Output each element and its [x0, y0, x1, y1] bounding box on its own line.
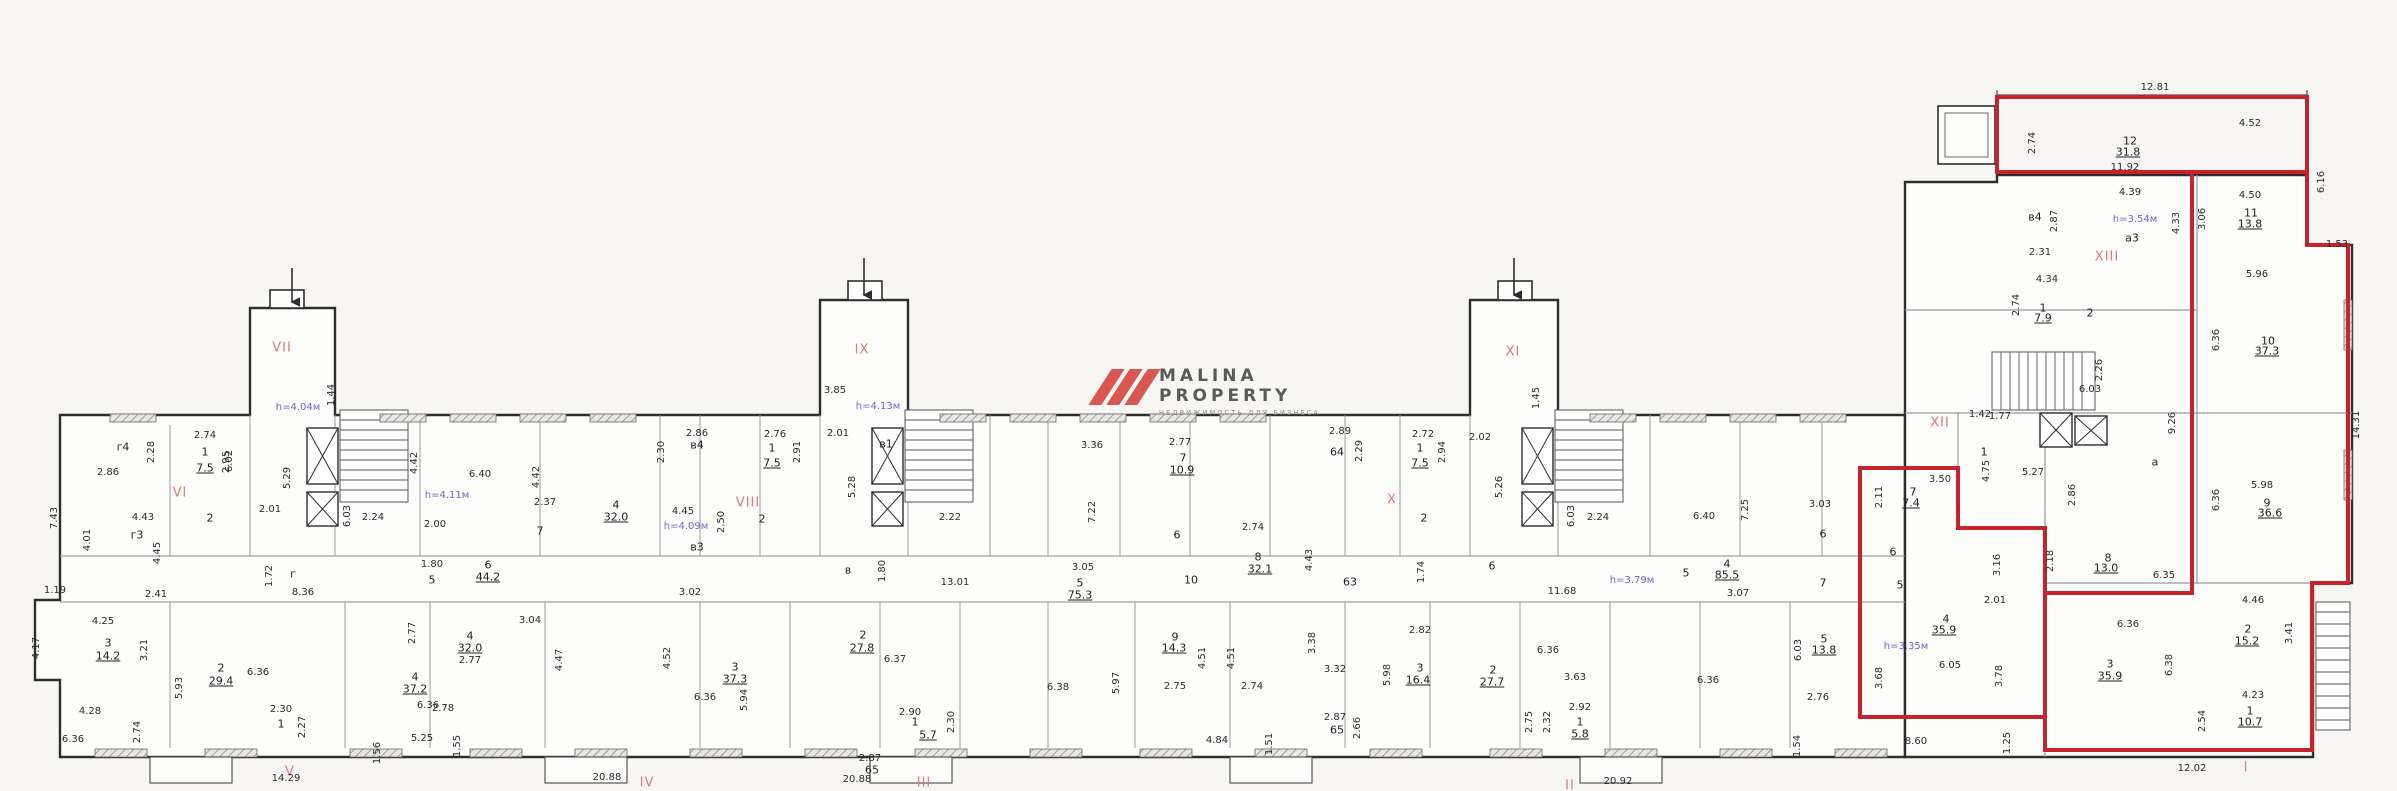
- room-area: 7.5: [763, 458, 781, 469]
- room-number: в4: [690, 440, 703, 451]
- room-area: 7.9: [2034, 313, 2052, 324]
- room-number: 5: [1683, 568, 1690, 579]
- dimension-label: 11.68: [1548, 587, 1577, 597]
- dimension-label: 3.85: [824, 386, 846, 396]
- dimension-label: 14.31: [2352, 411, 2362, 440]
- dimension-label: 4.52: [2239, 119, 2261, 129]
- room-number: 1: [912, 717, 919, 728]
- dimension-label: 2.30: [947, 711, 957, 733]
- room-number: 6: [1489, 561, 1496, 572]
- dimension-label: 4.45: [672, 507, 694, 517]
- room-number: 1: [1981, 447, 1988, 458]
- ceiling-height-label: h=3.54м: [2113, 215, 2158, 225]
- dimension-label: 2.32: [1543, 711, 1553, 733]
- room-area: 29.4: [209, 676, 234, 687]
- dimension-label: 2.37: [534, 498, 556, 508]
- dimension-label: 3.41: [2285, 622, 2295, 644]
- dimension-label: 4.43: [1305, 549, 1315, 571]
- office-number: 64: [1330, 447, 1344, 458]
- dimension-label: 2.74: [2028, 132, 2038, 154]
- dimension-label: 6.40: [1693, 512, 1715, 522]
- section-numeral: IX: [855, 344, 870, 357]
- room-number: 2: [218, 663, 225, 674]
- room-number: г4: [117, 442, 130, 453]
- dimension-label: 1.56: [373, 742, 383, 764]
- dimension-label: 5.97: [1112, 672, 1122, 694]
- office-number: 63: [1343, 577, 1357, 588]
- room-area: 5.7: [919, 730, 937, 741]
- dimension-label: 2.24: [362, 513, 384, 523]
- room-number: в1: [879, 439, 892, 450]
- dimension-label: 2.22: [939, 513, 961, 523]
- dimension-label: 6.38: [1047, 683, 1069, 693]
- room-number: 8: [1255, 552, 1262, 563]
- dimension-label: 3.32: [1324, 665, 1346, 675]
- ceiling-height-label: h=4.04м: [276, 403, 321, 413]
- room-area: 15.2: [2235, 636, 2260, 647]
- dimension-label: 2.86: [686, 429, 708, 439]
- section-numeral: VI: [173, 487, 188, 500]
- dimension-label: 7.22: [1088, 501, 1098, 523]
- dimension-label: 20.92: [1604, 777, 1633, 787]
- dimension-label: 3.16: [1993, 554, 2003, 576]
- dimension-label: 2.86: [2068, 484, 2078, 506]
- dimension-label: 2.86: [97, 468, 119, 478]
- room-number: 3: [105, 638, 112, 649]
- room-number: 2: [2087, 308, 2094, 319]
- room-area: 32.0: [458, 643, 483, 654]
- ceiling-height-label: h=3.79м: [1610, 576, 1655, 586]
- dimension-label: 2.18: [2046, 550, 2056, 572]
- dimension-label: 1.44: [327, 384, 337, 406]
- dimension-label: 6.03: [343, 505, 353, 527]
- dimension-label: 2.01: [827, 429, 849, 439]
- floorplan-page: MALINA PROPERTY НЕДВИЖИМОСТЬ ДЛЯ БИЗНЕСА…: [0, 0, 2397, 791]
- section-numeral: X: [1387, 494, 1397, 507]
- room-number: 6: [1174, 530, 1181, 541]
- dimension-label: 6.36: [417, 701, 439, 711]
- dimension-label: 4.42: [410, 452, 420, 474]
- dimension-label: 2.74: [194, 431, 216, 441]
- dimension-label: 6.03: [2079, 385, 2101, 395]
- dimension-label: 4.25: [92, 617, 114, 627]
- dimension-label: 2.74: [2012, 294, 2022, 316]
- room-number: 7: [537, 526, 544, 537]
- dimension-label: 1.72: [265, 565, 275, 587]
- room-area: 44.2: [476, 572, 501, 583]
- dimension-label: 6.37: [884, 655, 906, 665]
- dimension-label: 2.66: [1353, 717, 1363, 739]
- room-number: в: [845, 565, 851, 576]
- dimension-label: 2.89: [1329, 427, 1351, 437]
- room-area: 35.9: [1932, 625, 1957, 636]
- dimension-label: 2.11: [1875, 486, 1885, 508]
- room-number: 1: [1577, 717, 1584, 728]
- room-area: 10.7: [2238, 717, 2263, 728]
- room-number: 6: [485, 560, 492, 571]
- dimension-label: 2.76: [1807, 693, 1829, 703]
- dimension-label: 4.43: [132, 513, 154, 523]
- room-area: 37.2: [403, 684, 428, 695]
- room-area: 75.3: [1068, 590, 1093, 601]
- room-area: 37.3: [723, 674, 748, 685]
- room-number: 3: [732, 662, 739, 673]
- dimension-label: 4.51: [1198, 647, 1208, 669]
- dimension-label: 13.01: [941, 578, 970, 588]
- dimension-label: 6.38: [2165, 654, 2175, 676]
- room-number: 2: [207, 513, 214, 524]
- dimension-label: 2.74: [1242, 523, 1264, 533]
- room-number: 5: [1897, 580, 1904, 591]
- dimension-label: 6.36: [1537, 646, 1559, 656]
- dimension-label: 4.23: [2242, 691, 2264, 701]
- dimension-label: 6.36: [62, 735, 84, 745]
- room-number: 5: [429, 575, 436, 586]
- dimension-label: 2.50: [717, 511, 727, 533]
- dimension-label: 8.60: [1905, 737, 1927, 747]
- dimension-label: 2.54: [2198, 710, 2208, 732]
- ceiling-height-label: h=3.35м: [1884, 642, 1929, 652]
- room-number: 4: [412, 672, 419, 683]
- room-number: 1: [1417, 443, 1424, 454]
- room-number: 5: [1077, 578, 1084, 589]
- room-area: 31.8: [2116, 147, 2141, 158]
- dimension-label: 3.78: [1995, 665, 2005, 687]
- dimension-label: 5.98: [1383, 664, 1393, 686]
- dimension-label: 20.88: [843, 775, 872, 785]
- dimension-label: 3.21: [140, 639, 150, 661]
- dimension-label: 1.42: [1969, 410, 1991, 420]
- room-area: 10.9: [1170, 465, 1195, 476]
- room-area: 14.2: [96, 651, 121, 662]
- room-number: 2: [1421, 513, 1428, 524]
- dimension-label: 1.77: [1989, 412, 2011, 422]
- room-number: 3: [2107, 659, 2114, 670]
- dimension-label: 9.26: [2168, 412, 2178, 434]
- dimension-label: 6.36: [247, 668, 269, 678]
- dimension-label: 1.25: [2003, 732, 2013, 754]
- dimension-label: 1.55: [453, 735, 463, 757]
- dimension-label: 2.87: [859, 754, 881, 764]
- room-area: 13.8: [1812, 645, 1837, 656]
- section-numeral: XIII: [2095, 251, 2119, 264]
- dimension-label: 2.28: [147, 441, 157, 463]
- dimension-label: 1.51: [1265, 733, 1275, 755]
- dimension-label: 3.50: [1929, 475, 1951, 485]
- room-area: 13.8: [2238, 219, 2263, 230]
- dimension-label: 4.45: [153, 542, 163, 564]
- room-number: 4: [467, 631, 474, 642]
- room-number: а3: [2125, 233, 2139, 244]
- dimension-label: 20.88: [593, 773, 622, 783]
- dimension-label: 2.27: [298, 716, 308, 738]
- dimension-label: 5.96: [2246, 270, 2268, 280]
- dimension-label: 2.30: [657, 441, 667, 463]
- room-area: 7.5: [1411, 458, 1429, 469]
- dimension-label: 4.42: [532, 466, 542, 488]
- dimension-label: 2.24: [1587, 513, 1609, 523]
- dimension-label: 6.03: [1794, 639, 1804, 661]
- dimension-label: 4.28: [79, 707, 101, 717]
- dimension-label: 11.92: [2111, 163, 2140, 173]
- room-number: 7: [1820, 578, 1827, 589]
- room-number: 3: [1417, 663, 1424, 674]
- dimension-label: 2.01: [259, 505, 281, 515]
- section-numeral: III: [917, 777, 932, 790]
- dimension-label: 5.25: [411, 734, 433, 744]
- dimension-label: 4.84: [1206, 736, 1228, 746]
- room-area: 36.6: [2258, 508, 2283, 519]
- section-numeral: VIII: [736, 497, 760, 510]
- dimension-label: 1.19: [44, 586, 66, 596]
- dimension-label: 5.27: [2022, 468, 2044, 478]
- dimension-label: 2.82: [1409, 626, 1431, 636]
- room-number: 7: [1180, 453, 1187, 464]
- dimension-label: 14.29: [272, 774, 301, 784]
- dimension-label: 2.26: [2095, 359, 2105, 381]
- dimension-label: 2.87: [1324, 713, 1346, 723]
- dimension-label: 1.80: [878, 560, 888, 582]
- dimension-label: 2.72: [1412, 430, 1434, 440]
- room-number: 1: [278, 719, 285, 730]
- ceiling-height-label: h=4.13м: [856, 402, 901, 412]
- dimension-label: 3.06: [2198, 208, 2208, 230]
- dimension-label: 5.93: [175, 677, 185, 699]
- dimension-label: 4.39: [2119, 188, 2141, 198]
- room-number: в3: [690, 542, 703, 553]
- room-area: 27.7: [1480, 677, 1505, 688]
- room-number: в4: [2028, 212, 2041, 223]
- section-numeral: XI: [1506, 346, 1521, 359]
- dimension-label: 3.68: [1875, 667, 1885, 689]
- dimension-label: 6.36: [2212, 329, 2222, 351]
- section-numeral: IV: [640, 777, 655, 790]
- dimension-label: 1.80: [421, 560, 443, 570]
- dimension-label: 2.41: [145, 590, 167, 600]
- dimension-label: 6.05: [1939, 661, 1961, 671]
- room-area: 16.4: [1406, 675, 1431, 686]
- dimension-label: 2.31: [2029, 248, 2051, 258]
- dimension-label: 1.45: [1532, 387, 1542, 409]
- dimension-label: 6.36: [694, 693, 716, 703]
- dimension-label: 2.87: [2050, 210, 2060, 232]
- room-area: 7.4: [1902, 498, 1920, 509]
- room-area: 5.8: [1571, 729, 1589, 740]
- dimension-label: 2.77: [408, 622, 418, 644]
- room-number: 1: [202, 447, 209, 458]
- room-area: 7.5: [196, 463, 214, 474]
- dimension-label: 1.53: [2326, 240, 2348, 250]
- room-number: 10: [1184, 575, 1198, 586]
- room-number: 2: [2245, 624, 2252, 635]
- room-number: а: [2152, 457, 2159, 468]
- dimension-label: 6.36: [2212, 489, 2222, 511]
- dimension-label: 6.02: [225, 450, 235, 472]
- dimension-label: 6.36: [1697, 676, 1719, 686]
- dimension-label: 8.36: [292, 588, 314, 598]
- room-area: 32.0: [604, 512, 629, 523]
- dimension-label: 2.94: [1438, 441, 1448, 463]
- room-area: 13.0: [2094, 563, 2119, 574]
- dimension-label: 7.43: [50, 507, 60, 529]
- dimension-label: 2.91: [793, 441, 803, 463]
- dimension-label: 2.29: [1355, 440, 1365, 462]
- dimension-label: 3.38: [1308, 632, 1318, 654]
- dimension-label: 3.36: [1081, 441, 1103, 451]
- dimension-label: 2.75: [1525, 711, 1535, 733]
- room-number: г: [290, 569, 296, 580]
- dimension-label: 3.04: [519, 616, 541, 626]
- room-area: 37.3: [2255, 346, 2280, 357]
- dimension-label: 2.00: [424, 520, 446, 530]
- section-numeral: I: [2244, 762, 2249, 775]
- dimension-label: 1.74: [1417, 561, 1427, 583]
- dimension-label: 5.28: [848, 476, 858, 498]
- dimension-label: 6.40: [469, 470, 491, 480]
- room-area: 35.9: [2098, 671, 2123, 682]
- annotation-layer: VIVIIVIIIIXXXIXIIXIIIVIVIIIIIIh=4.04мh=4…: [0, 0, 2397, 791]
- room-area: 14.3: [1162, 643, 1187, 654]
- dimension-label: 2.92: [1569, 703, 1591, 713]
- ceiling-height-label: h=4.11м: [425, 491, 470, 501]
- dimension-label: 2.76: [764, 430, 786, 440]
- dimension-label: 3.07: [1727, 589, 1749, 599]
- dimension-label: 2.01: [1984, 596, 2006, 606]
- room-area: 27.8: [850, 643, 875, 654]
- dimension-label: 5.26: [1495, 476, 1505, 498]
- ceiling-height-label: h=4.09м: [664, 522, 709, 532]
- dimension-label: 2.30: [270, 705, 292, 715]
- dimension-label: 4.52: [663, 647, 673, 669]
- dimension-label: 3.02: [679, 588, 701, 598]
- section-numeral: XII: [1930, 417, 1950, 430]
- dimension-label: 6.03: [1567, 505, 1577, 527]
- dimension-label: 7.25: [1741, 499, 1751, 521]
- dimension-label: 3.63: [1564, 673, 1586, 683]
- room-area: 32.1: [1248, 564, 1273, 575]
- office-number: 65: [1330, 725, 1344, 736]
- section-numeral: II: [1565, 780, 1575, 791]
- dimension-label: 2.77: [1169, 438, 1191, 448]
- dimension-label: 6.35: [2153, 571, 2175, 581]
- dimension-label: 6.16: [2317, 171, 2327, 193]
- section-numeral: VII: [272, 342, 292, 355]
- room-number: 6: [1820, 529, 1827, 540]
- room-number: 2: [1490, 665, 1497, 676]
- dimension-label: 4.75: [1982, 460, 1992, 482]
- dimension-label: 2.02: [1469, 433, 1491, 443]
- room-number: 2: [759, 514, 766, 525]
- dimension-label: 4.51: [1227, 647, 1237, 669]
- dimension-label: 4.17: [32, 637, 42, 659]
- dimension-label: 12.02: [2178, 764, 2207, 774]
- dimension-label: 5.29: [283, 467, 293, 489]
- room-number: 2: [860, 630, 867, 641]
- dimension-label: 12.81: [2141, 83, 2170, 93]
- dimension-label: 4.01: [83, 529, 93, 551]
- dimension-label: 4.50: [2239, 191, 2261, 201]
- dimension-label: 4.33: [2172, 212, 2182, 234]
- room-number: г3: [131, 530, 144, 541]
- dimension-label: 5.94: [740, 689, 750, 711]
- dimension-label: 2.90: [899, 708, 921, 718]
- room-number: 6: [1890, 547, 1897, 558]
- dimension-label: 4.34: [2036, 275, 2058, 285]
- dimension-label: 1.54: [1793, 735, 1803, 757]
- dimension-label: 2.77: [459, 656, 481, 666]
- dimension-label: 4.46: [2242, 596, 2264, 606]
- dimension-label: 6.36: [2117, 620, 2139, 630]
- room-number: 1: [769, 443, 776, 454]
- room-area: 85.5: [1715, 570, 1740, 581]
- dimension-label: 4.47: [555, 649, 565, 671]
- dimension-label: 2.74: [1241, 682, 1263, 692]
- dimension-label: 5.98: [2251, 481, 2273, 491]
- dimension-label: 2.74: [133, 721, 143, 743]
- dimension-label: 3.05: [1072, 563, 1094, 573]
- dimension-label: 2.75: [1164, 682, 1186, 692]
- dimension-label: 3.03: [1809, 500, 1831, 510]
- room-number: 4: [613, 500, 620, 511]
